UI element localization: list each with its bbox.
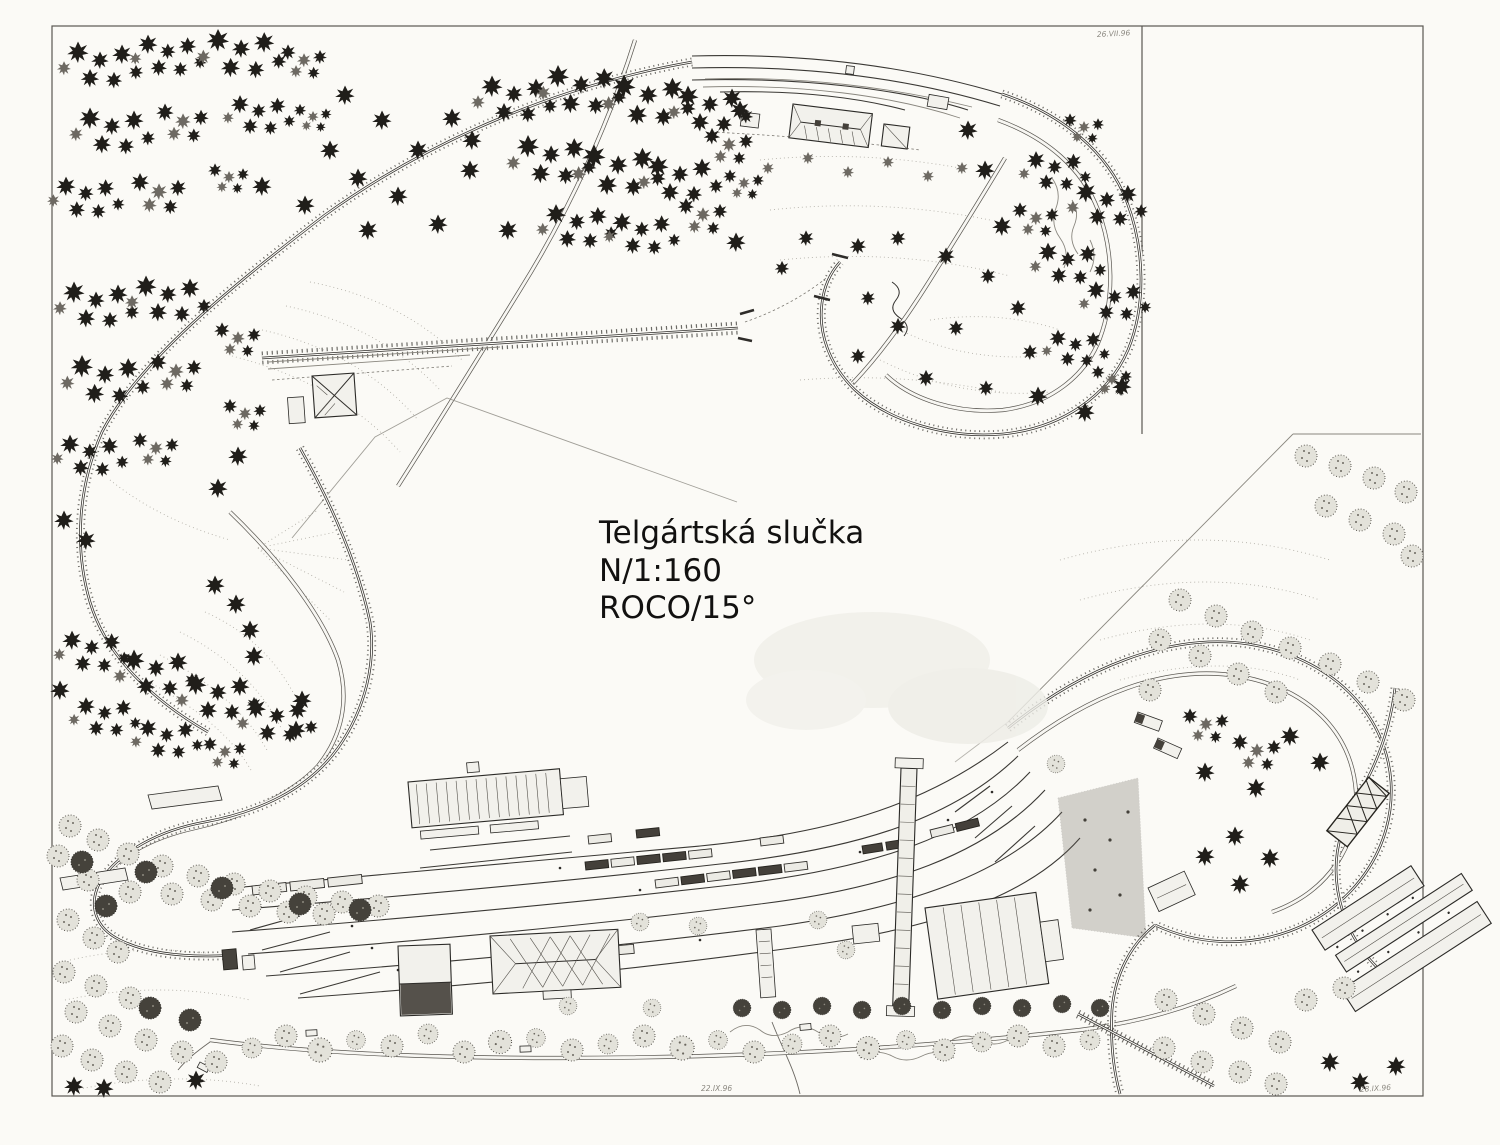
goods-shed	[881, 124, 909, 149]
paper-background	[0, 0, 1500, 1145]
water-crane	[846, 66, 855, 75]
layout-track-system: ROCO/15°	[599, 590, 756, 626]
depot-building	[398, 944, 452, 1016]
yard-hut	[242, 955, 255, 970]
handwritten-date-bottom-center: 22.IX.96	[701, 1084, 732, 1093]
yard-hut	[222, 949, 238, 970]
layout-scale: N/1:160	[599, 553, 722, 589]
track-plan-drawing: 26.VII.96 22.IX.96 28.IX.96 Telgártská s…	[0, 0, 1500, 1145]
yard-shed	[852, 923, 880, 944]
coal-yard	[1058, 778, 1146, 938]
handwritten-date-top-right: 26.VII.96	[1097, 28, 1131, 39]
layout-title: Telgártská slučka	[598, 515, 864, 551]
scanned-plan-page: 26.VII.96 22.IX.96 28.IX.96 Telgártská s…	[0, 0, 1500, 1145]
